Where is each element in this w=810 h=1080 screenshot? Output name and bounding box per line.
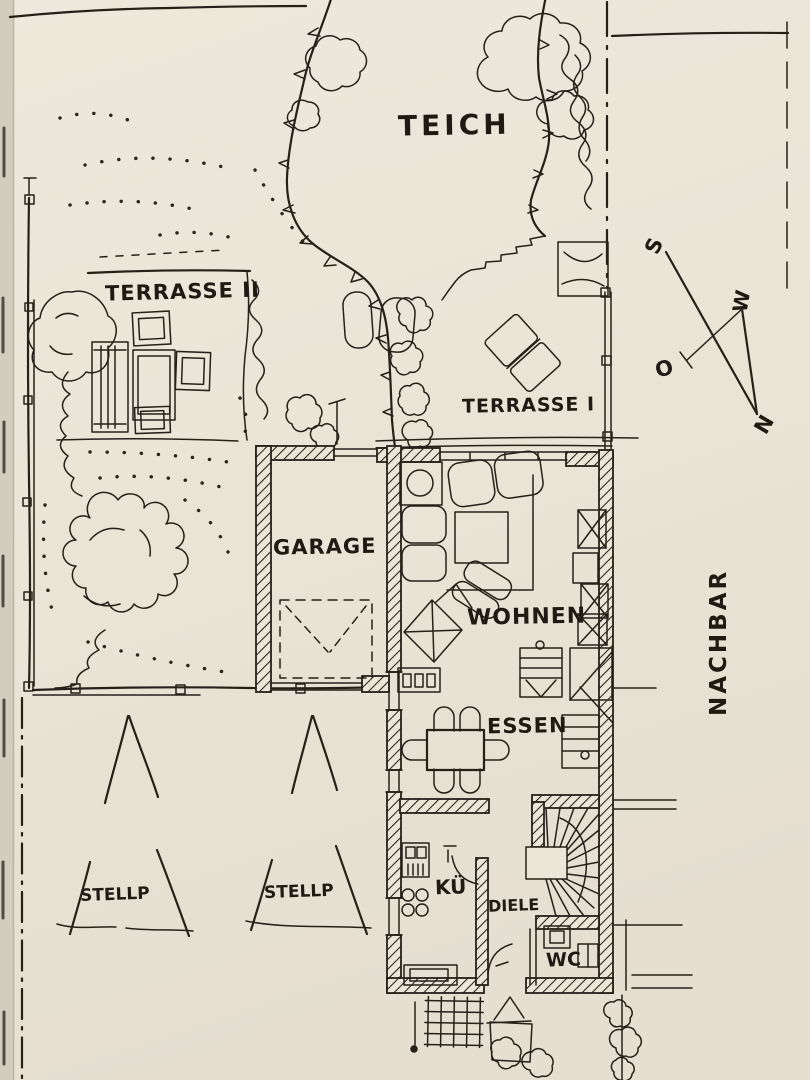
terrace2-label: TERRASSE II xyxy=(105,278,260,306)
parking2-label: STELLP xyxy=(264,881,334,903)
garage-label: GARAGE xyxy=(273,534,377,560)
hall-label: DIELE xyxy=(488,895,540,916)
neighbor-label: NACHBAR xyxy=(706,569,732,716)
wc-label: WC xyxy=(546,948,582,971)
living-label: WOHNEN xyxy=(467,604,587,631)
terrace1-label: TERRASSE I xyxy=(462,393,595,417)
compass-west-label: W xyxy=(728,288,755,314)
pond-label: TEICH xyxy=(398,108,511,143)
parking1-label: STELLP xyxy=(80,884,150,906)
floor-plan-page: TEICH S W O N NACHBAR xyxy=(0,0,810,1080)
floor-plan-drawing: TEICH S W O N NACHBAR xyxy=(0,0,810,1080)
dining-label: ESSEN xyxy=(487,713,568,738)
kitchen-label: KÜ xyxy=(435,874,467,899)
